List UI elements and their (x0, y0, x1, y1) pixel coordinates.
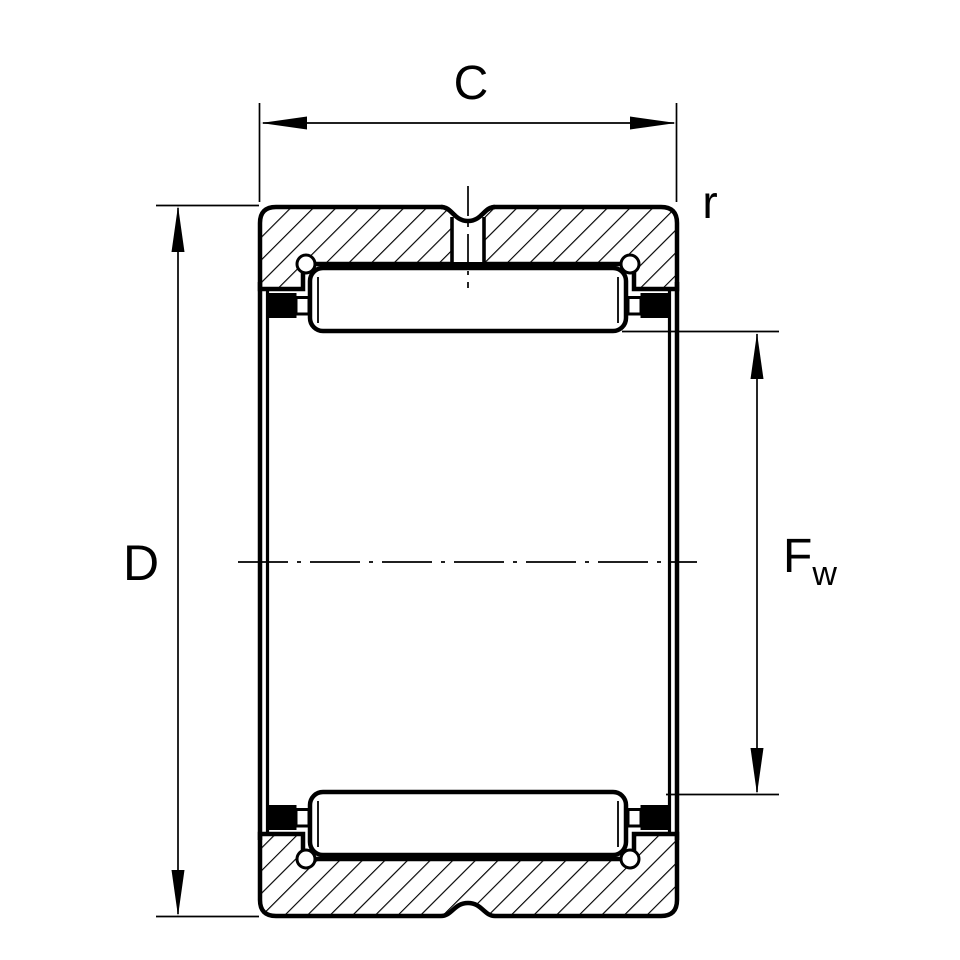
cage-section-top-right (641, 293, 671, 318)
cage-section-top-left (267, 293, 297, 318)
cage-rail-bottom-left (296, 810, 309, 827)
label-width-c: C (454, 57, 489, 110)
drawing-canvas: C D Fw r (0, 0, 960, 960)
needle-roller-bottom (310, 792, 626, 855)
cage-rail-top-left (296, 298, 309, 315)
cage-rail-top-right (628, 298, 641, 315)
bearing-cross-section-diagram: C D Fw r (0, 0, 960, 960)
cage-rail-bottom-right (628, 810, 641, 827)
relief-circle-top-right (621, 255, 639, 273)
label-bore-subscript: w (811, 555, 837, 593)
needle-roller-top (310, 268, 626, 331)
label-outer-diameter-d: D (123, 535, 159, 591)
cage-section-bottom-left (267, 805, 297, 830)
cage-section-bottom-right (641, 805, 671, 830)
label-bore-letter: F (783, 530, 812, 583)
relief-circle-top-left (297, 255, 315, 273)
relief-circle-bottom-left (297, 850, 315, 868)
relief-circle-bottom-right (621, 850, 639, 868)
label-corner-radius-r: r (702, 176, 717, 228)
